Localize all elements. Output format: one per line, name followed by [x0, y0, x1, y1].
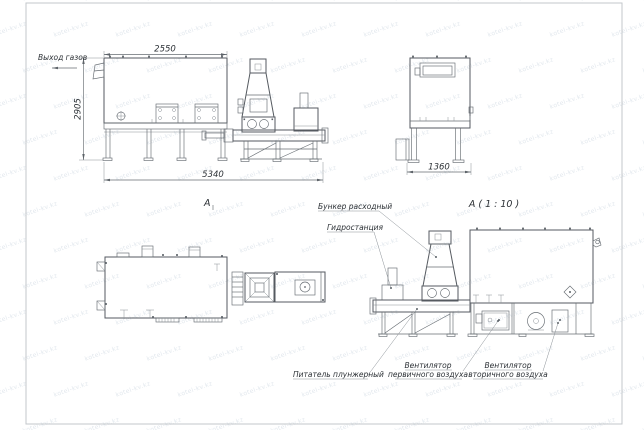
hatch-box-2 [195, 104, 218, 123]
side-legs [408, 128, 464, 163]
plan-feeder-ladder [232, 272, 243, 305]
secondary-fan-label-line2: вторичного воздуха [468, 370, 548, 379]
dim-5340-text: 5340 [202, 170, 224, 180]
hydraulic-station [382, 268, 403, 300]
section-body [470, 230, 593, 303]
secondary-fan-label-line1: Вентилятор [485, 361, 532, 370]
label-secondary-fan: Вентилятор вторичного воздуха [468, 322, 559, 379]
sheet-border [26, 3, 622, 424]
front-view [93, 56, 328, 162]
hydraulic-label-text: Гидростанция [327, 223, 384, 232]
feeder-label-text: Питатель плунжерный [293, 370, 384, 379]
hatch-box-1 [156, 104, 178, 123]
dimension-2550: 2550 [104, 45, 227, 58]
flue-outlet [93, 63, 104, 79]
side-panel [415, 63, 455, 77]
side-small-box [396, 139, 409, 160]
hopper-front [238, 59, 275, 132]
section-feeder-trough [370, 298, 470, 314]
plan-grate-strips [156, 318, 222, 322]
side-body [410, 58, 470, 128]
plan-hopper-top [245, 273, 274, 302]
section-view: А ( 1 : 10 ) [370, 199, 601, 337]
plan-drive-box [275, 272, 325, 302]
dim-2550-text: 2550 [154, 45, 176, 55]
secondary-fan [528, 310, 569, 332]
boiler-support-frame [103, 129, 227, 161]
plan-left-tabs [97, 262, 105, 310]
plan-view [97, 246, 325, 322]
drawing-sheet: kotel-kv.kzkotel-kv.kzkotel-kv.kzkotel-k… [0, 0, 644, 430]
gas-outlet-text: Выход газов [38, 53, 87, 62]
label-plunger-feeder: Питатель плунжерный [293, 308, 418, 379]
primary-fan-label-line1: Вентилятор [405, 361, 452, 370]
plan-body [105, 257, 227, 318]
hopper-label-text: Бункер расходный [318, 202, 392, 211]
side-view [396, 56, 473, 163]
section-mark-text: А [203, 198, 211, 209]
boiler-body [104, 58, 227, 123]
drawing-canvas: 2550 2905 5340 Выход газов [0, 0, 644, 430]
dimension-5340: 5340 [104, 162, 323, 183]
section-hopper [422, 231, 458, 301]
label-gas-outlet: Выход газов [38, 53, 87, 69]
dim-1360-text: 1360 [428, 163, 450, 173]
detail-title-text: А ( 1 : 10 ) [468, 199, 519, 210]
label-section-a: А [203, 198, 213, 210]
primary-fan-label-line2: первичного воздуха [388, 370, 468, 379]
dim-2905-text: 2905 [74, 98, 84, 120]
dimension-1360: 1360 [407, 163, 471, 176]
primary-fan [476, 311, 509, 330]
section-feeder-frame [378, 312, 458, 337]
dimension-2905: 2905 [74, 58, 104, 160]
plan-top-tabs [117, 246, 200, 257]
label-hydraulic-station: Гидростанция [327, 223, 392, 289]
